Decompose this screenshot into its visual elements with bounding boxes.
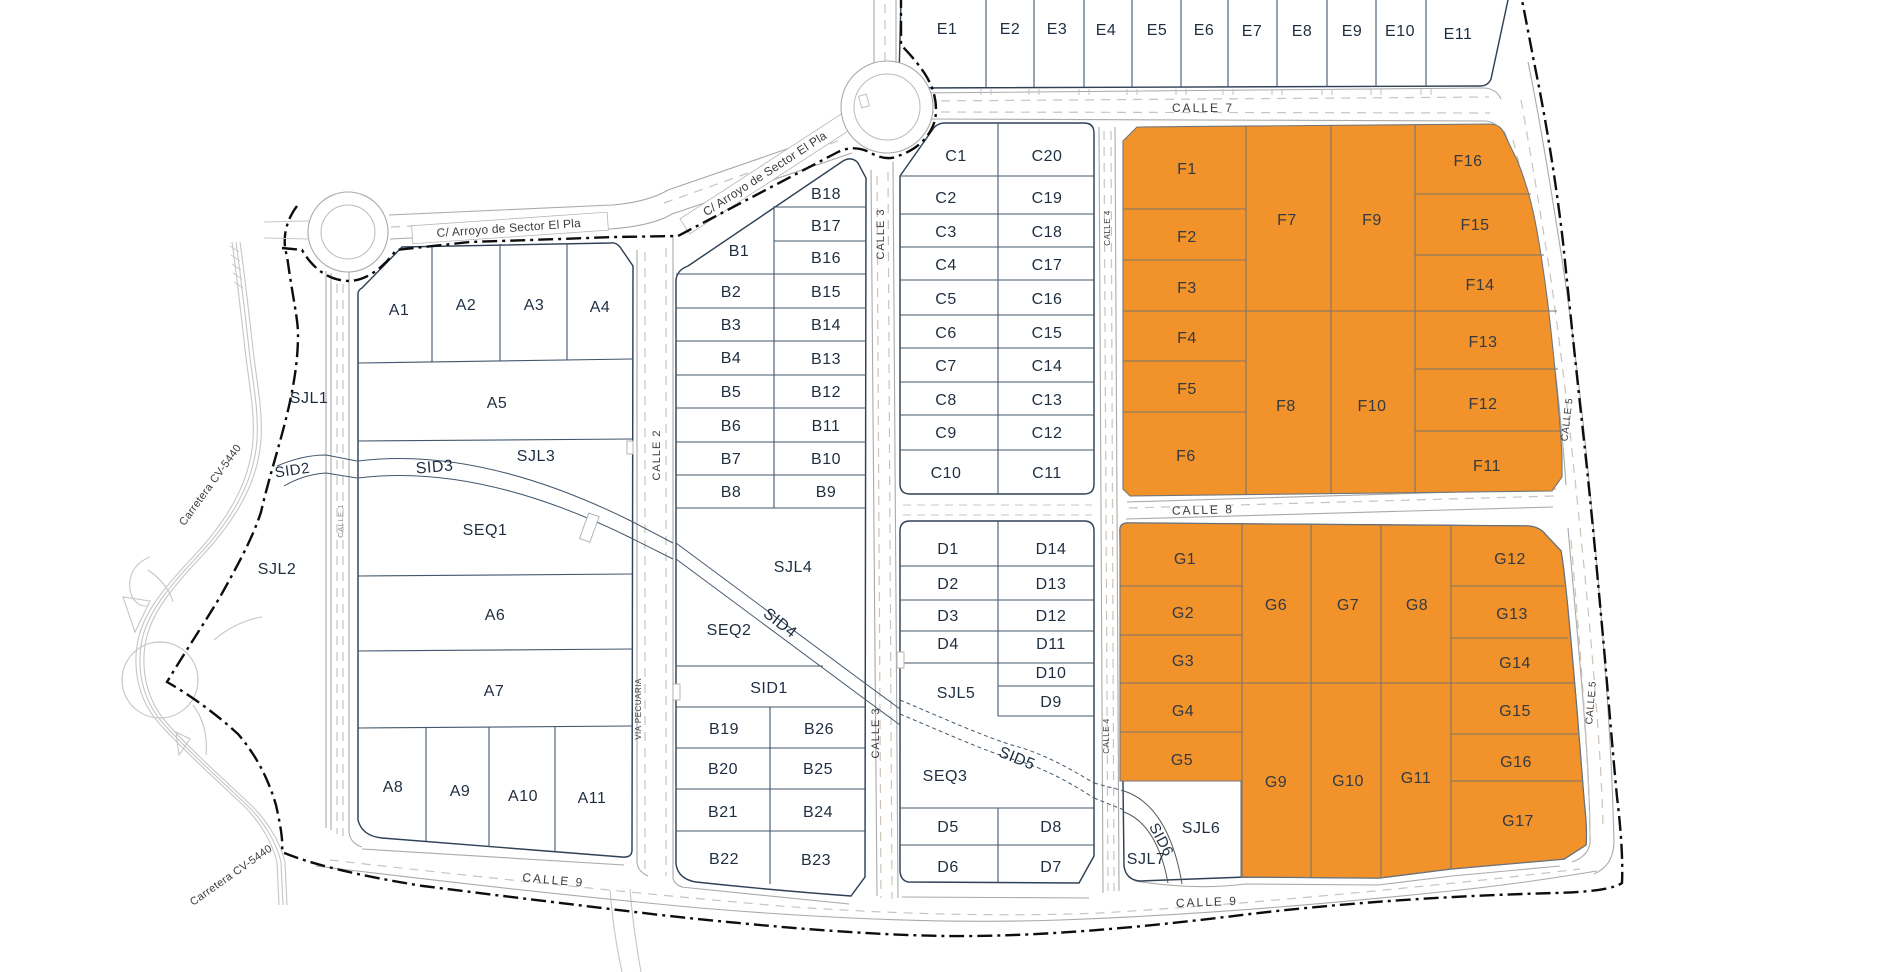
svg-text:B6: B6 [721, 418, 742, 435]
svg-text:B8: B8 [721, 484, 742, 501]
svg-text:C5: C5 [935, 291, 956, 308]
svg-text:B18: B18 [811, 186, 841, 203]
svg-text:F1: F1 [1177, 161, 1197, 178]
svg-text:SJL1: SJL1 [290, 390, 328, 407]
svg-text:D5: D5 [937, 819, 958, 836]
svg-text:A9: A9 [450, 783, 471, 800]
svg-text:SJL4: SJL4 [774, 559, 812, 576]
svg-text:F6: F6 [1176, 448, 1196, 465]
svg-text:CALLE 4: CALLE 4 [1103, 210, 1112, 246]
svg-text:E10: E10 [1385, 23, 1415, 40]
svg-text:SEQ3: SEQ3 [923, 768, 968, 785]
svg-text:B16: B16 [811, 250, 841, 267]
svg-text:A10: A10 [508, 788, 538, 805]
svg-text:SJL6: SJL6 [1182, 820, 1220, 837]
svg-text:D7: D7 [1040, 859, 1061, 876]
svg-text:D14: D14 [1036, 541, 1067, 558]
svg-text:B10: B10 [811, 451, 841, 468]
svg-text:F9: F9 [1362, 212, 1382, 229]
svg-text:A4: A4 [590, 299, 611, 316]
svg-text:A8: A8 [383, 779, 404, 796]
svg-text:CALLE 3: CALLE 3 [870, 707, 882, 758]
svg-text:C11: C11 [1032, 465, 1062, 482]
svg-text:G3: G3 [1172, 653, 1194, 670]
svg-text:G14: G14 [1499, 655, 1531, 672]
svg-text:G10: G10 [1332, 773, 1364, 790]
svg-text:B23: B23 [801, 852, 831, 869]
svg-text:F2: F2 [1177, 229, 1197, 246]
svg-text:G9: G9 [1265, 774, 1287, 791]
svg-text:A3: A3 [524, 297, 545, 314]
svg-text:E8: E8 [1292, 23, 1313, 40]
svg-text:D8: D8 [1040, 819, 1061, 836]
svg-text:G15: G15 [1499, 703, 1531, 720]
svg-text:F7: F7 [1277, 212, 1297, 229]
svg-text:E1: E1 [937, 21, 958, 38]
svg-text:SID3: SID3 [415, 457, 454, 477]
svg-text:C14: C14 [1032, 358, 1063, 375]
svg-text:G12: G12 [1494, 551, 1526, 568]
svg-text:B24: B24 [803, 804, 833, 821]
svg-text:C4: C4 [935, 257, 956, 274]
svg-text:CALLE 1: CALLE 1 [336, 504, 345, 538]
svg-text:E3: E3 [1047, 21, 1068, 38]
svg-text:B2: B2 [721, 284, 742, 301]
svg-text:B19: B19 [709, 721, 739, 738]
svg-text:G2: G2 [1172, 605, 1194, 622]
svg-text:E2: E2 [1000, 21, 1021, 38]
svg-text:B11: B11 [812, 418, 841, 435]
svg-text:B15: B15 [811, 284, 841, 301]
svg-text:SJL5: SJL5 [937, 685, 975, 702]
svg-text:G4: G4 [1172, 703, 1194, 720]
svg-text:F3: F3 [1177, 280, 1197, 297]
svg-text:A6: A6 [485, 607, 506, 624]
svg-text:C15: C15 [1032, 325, 1063, 342]
svg-text:D1: D1 [937, 541, 958, 558]
svg-text:C19: C19 [1032, 190, 1063, 207]
svg-text:F10: F10 [1357, 398, 1386, 415]
svg-text:B20: B20 [708, 761, 738, 778]
svg-text:G8: G8 [1406, 597, 1428, 614]
svg-text:G6: G6 [1265, 597, 1287, 614]
svg-text:B25: B25 [803, 761, 833, 778]
svg-text:A7: A7 [484, 683, 505, 700]
svg-text:D12: D12 [1036, 608, 1067, 625]
svg-text:B17: B17 [811, 218, 841, 235]
svg-text:C13: C13 [1032, 392, 1063, 409]
svg-text:D13: D13 [1036, 576, 1067, 593]
svg-text:C1: C1 [945, 148, 966, 165]
svg-text:D4: D4 [937, 636, 958, 653]
svg-text:F12: F12 [1468, 396, 1497, 413]
svg-text:CALLE 3: CALLE 3 [875, 208, 887, 259]
svg-text:D2: D2 [937, 576, 958, 593]
svg-text:C18: C18 [1032, 224, 1063, 241]
svg-text:C20: C20 [1032, 148, 1063, 165]
svg-text:C2: C2 [935, 190, 956, 207]
svg-text:F4: F4 [1177, 330, 1197, 347]
svg-text:A11: A11 [578, 790, 607, 807]
svg-text:F11: F11 [1473, 458, 1501, 475]
svg-text:E5: E5 [1147, 22, 1168, 39]
svg-text:E7: E7 [1242, 23, 1263, 40]
svg-text:G7: G7 [1337, 597, 1359, 614]
svg-text:D11: D11 [1036, 636, 1066, 653]
svg-text:B22: B22 [709, 851, 739, 868]
svg-text:F5: F5 [1177, 381, 1197, 398]
svg-text:G5: G5 [1171, 752, 1193, 769]
svg-text:A5: A5 [487, 395, 508, 412]
svg-text:D6: D6 [937, 859, 958, 876]
svg-text:E11: E11 [1444, 26, 1473, 43]
svg-text:F8: F8 [1276, 398, 1296, 415]
svg-text:C16: C16 [1032, 291, 1063, 308]
svg-text:C12: C12 [1032, 425, 1063, 442]
svg-text:CALLE 9: CALLE 9 [1176, 894, 1238, 910]
svg-text:SID1: SID1 [750, 680, 788, 697]
svg-text:D3: D3 [937, 608, 958, 625]
svg-text:B21: B21 [708, 804, 738, 821]
svg-text:E4: E4 [1096, 22, 1117, 39]
svg-text:C9: C9 [935, 425, 956, 442]
svg-text:B13: B13 [811, 351, 841, 368]
svg-text:E6: E6 [1194, 22, 1215, 39]
svg-text:A2: A2 [456, 297, 477, 314]
svg-text:CALLE 2: CALLE 2 [651, 429, 663, 480]
svg-text:C8: C8 [935, 392, 956, 409]
svg-text:B14: B14 [811, 317, 841, 334]
svg-text:F15: F15 [1460, 217, 1489, 234]
svg-text:SEQ2: SEQ2 [707, 622, 752, 639]
svg-text:D10: D10 [1036, 665, 1067, 682]
svg-text:G16: G16 [1500, 754, 1532, 771]
svg-text:G17: G17 [1502, 813, 1534, 830]
svg-text:SEQ1: SEQ1 [463, 522, 508, 539]
svg-text:CALLE 4: CALLE 4 [1102, 718, 1111, 754]
svg-text:B5: B5 [721, 384, 742, 401]
svg-text:SJL2: SJL2 [258, 561, 296, 578]
svg-text:VIA PECUARIA: VIA PECUARIA [634, 678, 643, 740]
svg-text:F14: F14 [1465, 277, 1494, 294]
svg-text:B7: B7 [721, 451, 742, 468]
svg-text:E9: E9 [1342, 23, 1363, 40]
svg-text:B26: B26 [804, 721, 834, 738]
svg-text:B1: B1 [729, 243, 750, 260]
svg-text:B9: B9 [816, 484, 837, 501]
svg-text:G13: G13 [1496, 606, 1528, 623]
svg-text:F16: F16 [1453, 153, 1482, 170]
svg-text:C6: C6 [935, 325, 956, 342]
svg-text:CALLE 8: CALLE 8 [1172, 502, 1234, 518]
svg-text:C17: C17 [1032, 257, 1063, 274]
svg-text:F13: F13 [1468, 334, 1497, 351]
svg-text:B12: B12 [811, 384, 841, 401]
svg-text:B3: B3 [721, 317, 742, 334]
svg-text:B4: B4 [721, 350, 742, 367]
svg-text:A1: A1 [389, 302, 410, 319]
svg-text:CALLE 7: CALLE 7 [1172, 101, 1234, 115]
svg-text:C7: C7 [935, 358, 956, 375]
svg-text:C3: C3 [935, 224, 956, 241]
svg-text:C10: C10 [931, 465, 962, 482]
svg-text:SJL3: SJL3 [517, 448, 555, 465]
svg-text:D9: D9 [1040, 694, 1061, 711]
svg-text:G1: G1 [1174, 551, 1196, 568]
svg-text:G11: G11 [1401, 770, 1432, 787]
